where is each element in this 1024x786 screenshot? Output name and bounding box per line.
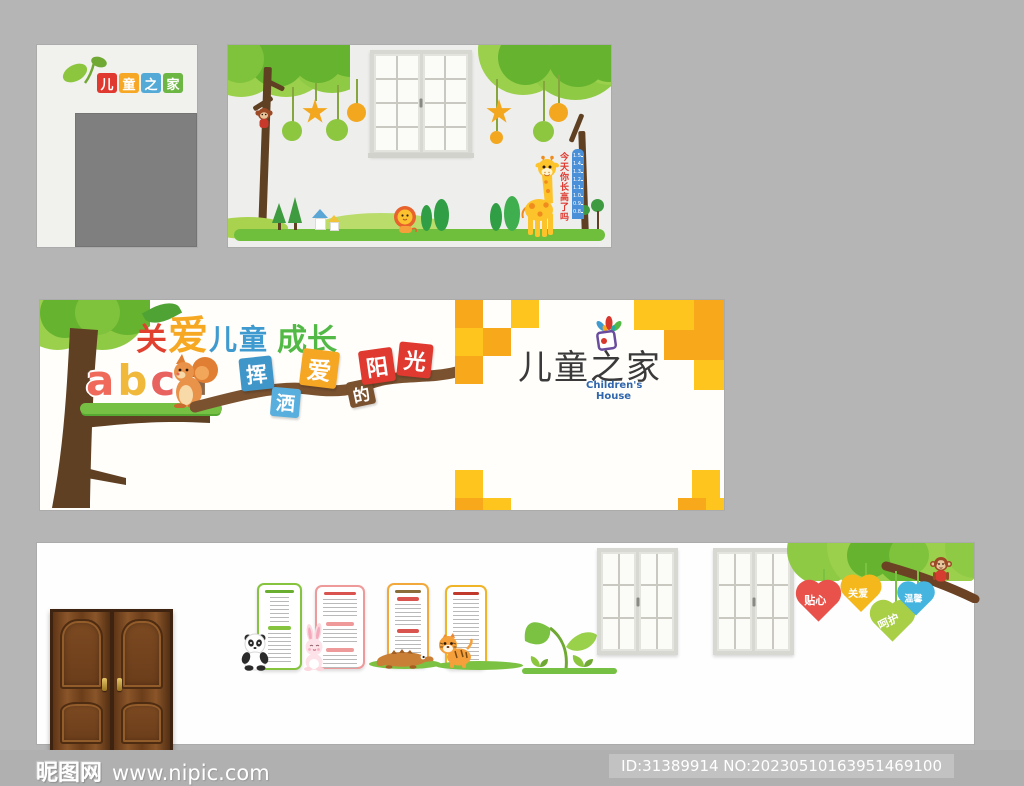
text-lines-placeholder — [323, 599, 357, 619]
panda-mascot — [239, 631, 273, 671]
design-canvas: 儿 童 之 家 — [0, 0, 1024, 786]
sprout-base-strip — [522, 668, 617, 674]
mosaic-square — [692, 470, 720, 498]
door-leaf-right — [113, 611, 172, 753]
monkey-mascot — [254, 105, 274, 131]
text-lines-placeholder — [323, 629, 357, 645]
crocodile-mascot — [371, 646, 437, 670]
site-name: 昵图网 — [36, 755, 102, 786]
door-handle — [102, 678, 107, 691]
door-leaf-left — [52, 611, 111, 753]
hanging-ball — [347, 103, 366, 122]
slogan-tile: 洒 — [270, 387, 301, 418]
mosaic-square — [694, 360, 724, 390]
logo-char: 家 — [163, 73, 183, 93]
mosaic-square — [678, 498, 706, 510]
giraffe-mascot — [516, 155, 560, 239]
window — [370, 50, 472, 156]
hanging-ball — [282, 121, 302, 141]
slogan-tile: 爱 — [299, 348, 340, 389]
banner-logo-subtitle: House — [596, 391, 631, 402]
window-handle — [420, 99, 423, 108]
logo-char: 儿 — [97, 73, 117, 93]
monkey-mascot — [928, 555, 954, 585]
banner-logo-subtitle: Children's — [586, 380, 642, 391]
watermark-bar: 昵图网 www.nipic.com ID:31389914 NO:2023051… — [0, 750, 1024, 786]
hanging-ball — [549, 103, 568, 122]
mosaic-square — [483, 498, 511, 510]
window — [713, 548, 794, 655]
panel-corridor-wall: 贴心 关爱 呵护 温馨 — [37, 543, 974, 744]
rabbit-mascot — [300, 623, 328, 671]
lion-mascot — [392, 205, 420, 235]
wooden-double-door — [50, 609, 173, 755]
window-handle — [636, 597, 639, 606]
pine-tree — [272, 203, 286, 223]
heart-tag: 贴心 — [799, 583, 837, 621]
mosaic-square — [706, 498, 724, 510]
window-sill — [368, 153, 474, 158]
panel-entrance-sign: 儿 童 之 家 — [37, 45, 197, 247]
growth-question-text: 今天你长高了吗 — [557, 152, 570, 222]
text-lines-placeholder — [323, 655, 357, 669]
mosaic-square — [694, 300, 724, 330]
panel-classroom-wall: 今天你长高了吗 1.5 1.4 1.3 1.2 1.1 1.0 0.9 0.8 — [228, 45, 611, 247]
text-lines-placeholder — [395, 604, 421, 626]
heart-tag: 呵护 — [873, 603, 911, 641]
slogan-tile: 光 — [396, 341, 433, 378]
height-ruler: 1.5 1.4 1.3 1.2 1.1 1.0 0.9 0.8 — [572, 149, 584, 219]
site-url: www.nipic.com — [112, 761, 270, 785]
mosaic-square — [511, 300, 539, 328]
bush — [421, 205, 432, 231]
door-handle — [117, 678, 122, 691]
mosaic-square — [634, 300, 664, 330]
image-id-label: ID:31389914 NO:20230510163951469100 — [609, 754, 954, 778]
pine-tree — [288, 197, 302, 223]
slogan-tile: 阳 — [358, 347, 396, 385]
text-lines-placeholder — [270, 597, 290, 623]
slogan-tile: 挥 — [238, 355, 274, 391]
logo-char: 之 — [141, 73, 161, 93]
mosaic-square — [455, 300, 483, 328]
tree-canopy-left — [228, 45, 350, 109]
window — [597, 548, 678, 655]
hanging-ball — [533, 121, 554, 142]
mosaic-square — [455, 470, 483, 498]
bush — [490, 203, 502, 231]
tiger-mascot — [437, 631, 475, 669]
logo-char: 童 — [119, 73, 139, 93]
bush — [434, 199, 449, 231]
hanging-ball — [326, 119, 348, 141]
panel-slogan-wall: 关 爱 儿童 成长 a b c d 挥 — [40, 300, 724, 510]
mosaic-square — [664, 330, 694, 360]
mosaic-square — [455, 328, 483, 356]
mosaic-square — [455, 356, 483, 384]
mosaic-square — [694, 330, 724, 360]
mosaic-square — [455, 498, 483, 510]
mosaic-square — [483, 328, 511, 356]
window-handle — [752, 597, 755, 606]
blank-display-board — [75, 113, 197, 247]
hanging-ball — [490, 131, 503, 144]
mosaic-square — [664, 300, 694, 330]
hut — [315, 218, 326, 230]
hut-roof — [312, 209, 328, 218]
hut — [330, 222, 339, 231]
childrens-house-logo: 儿 童 之 家 — [97, 73, 183, 93]
watermark-site: 昵图网 www.nipic.com — [36, 755, 270, 786]
hut-roof — [328, 215, 340, 222]
